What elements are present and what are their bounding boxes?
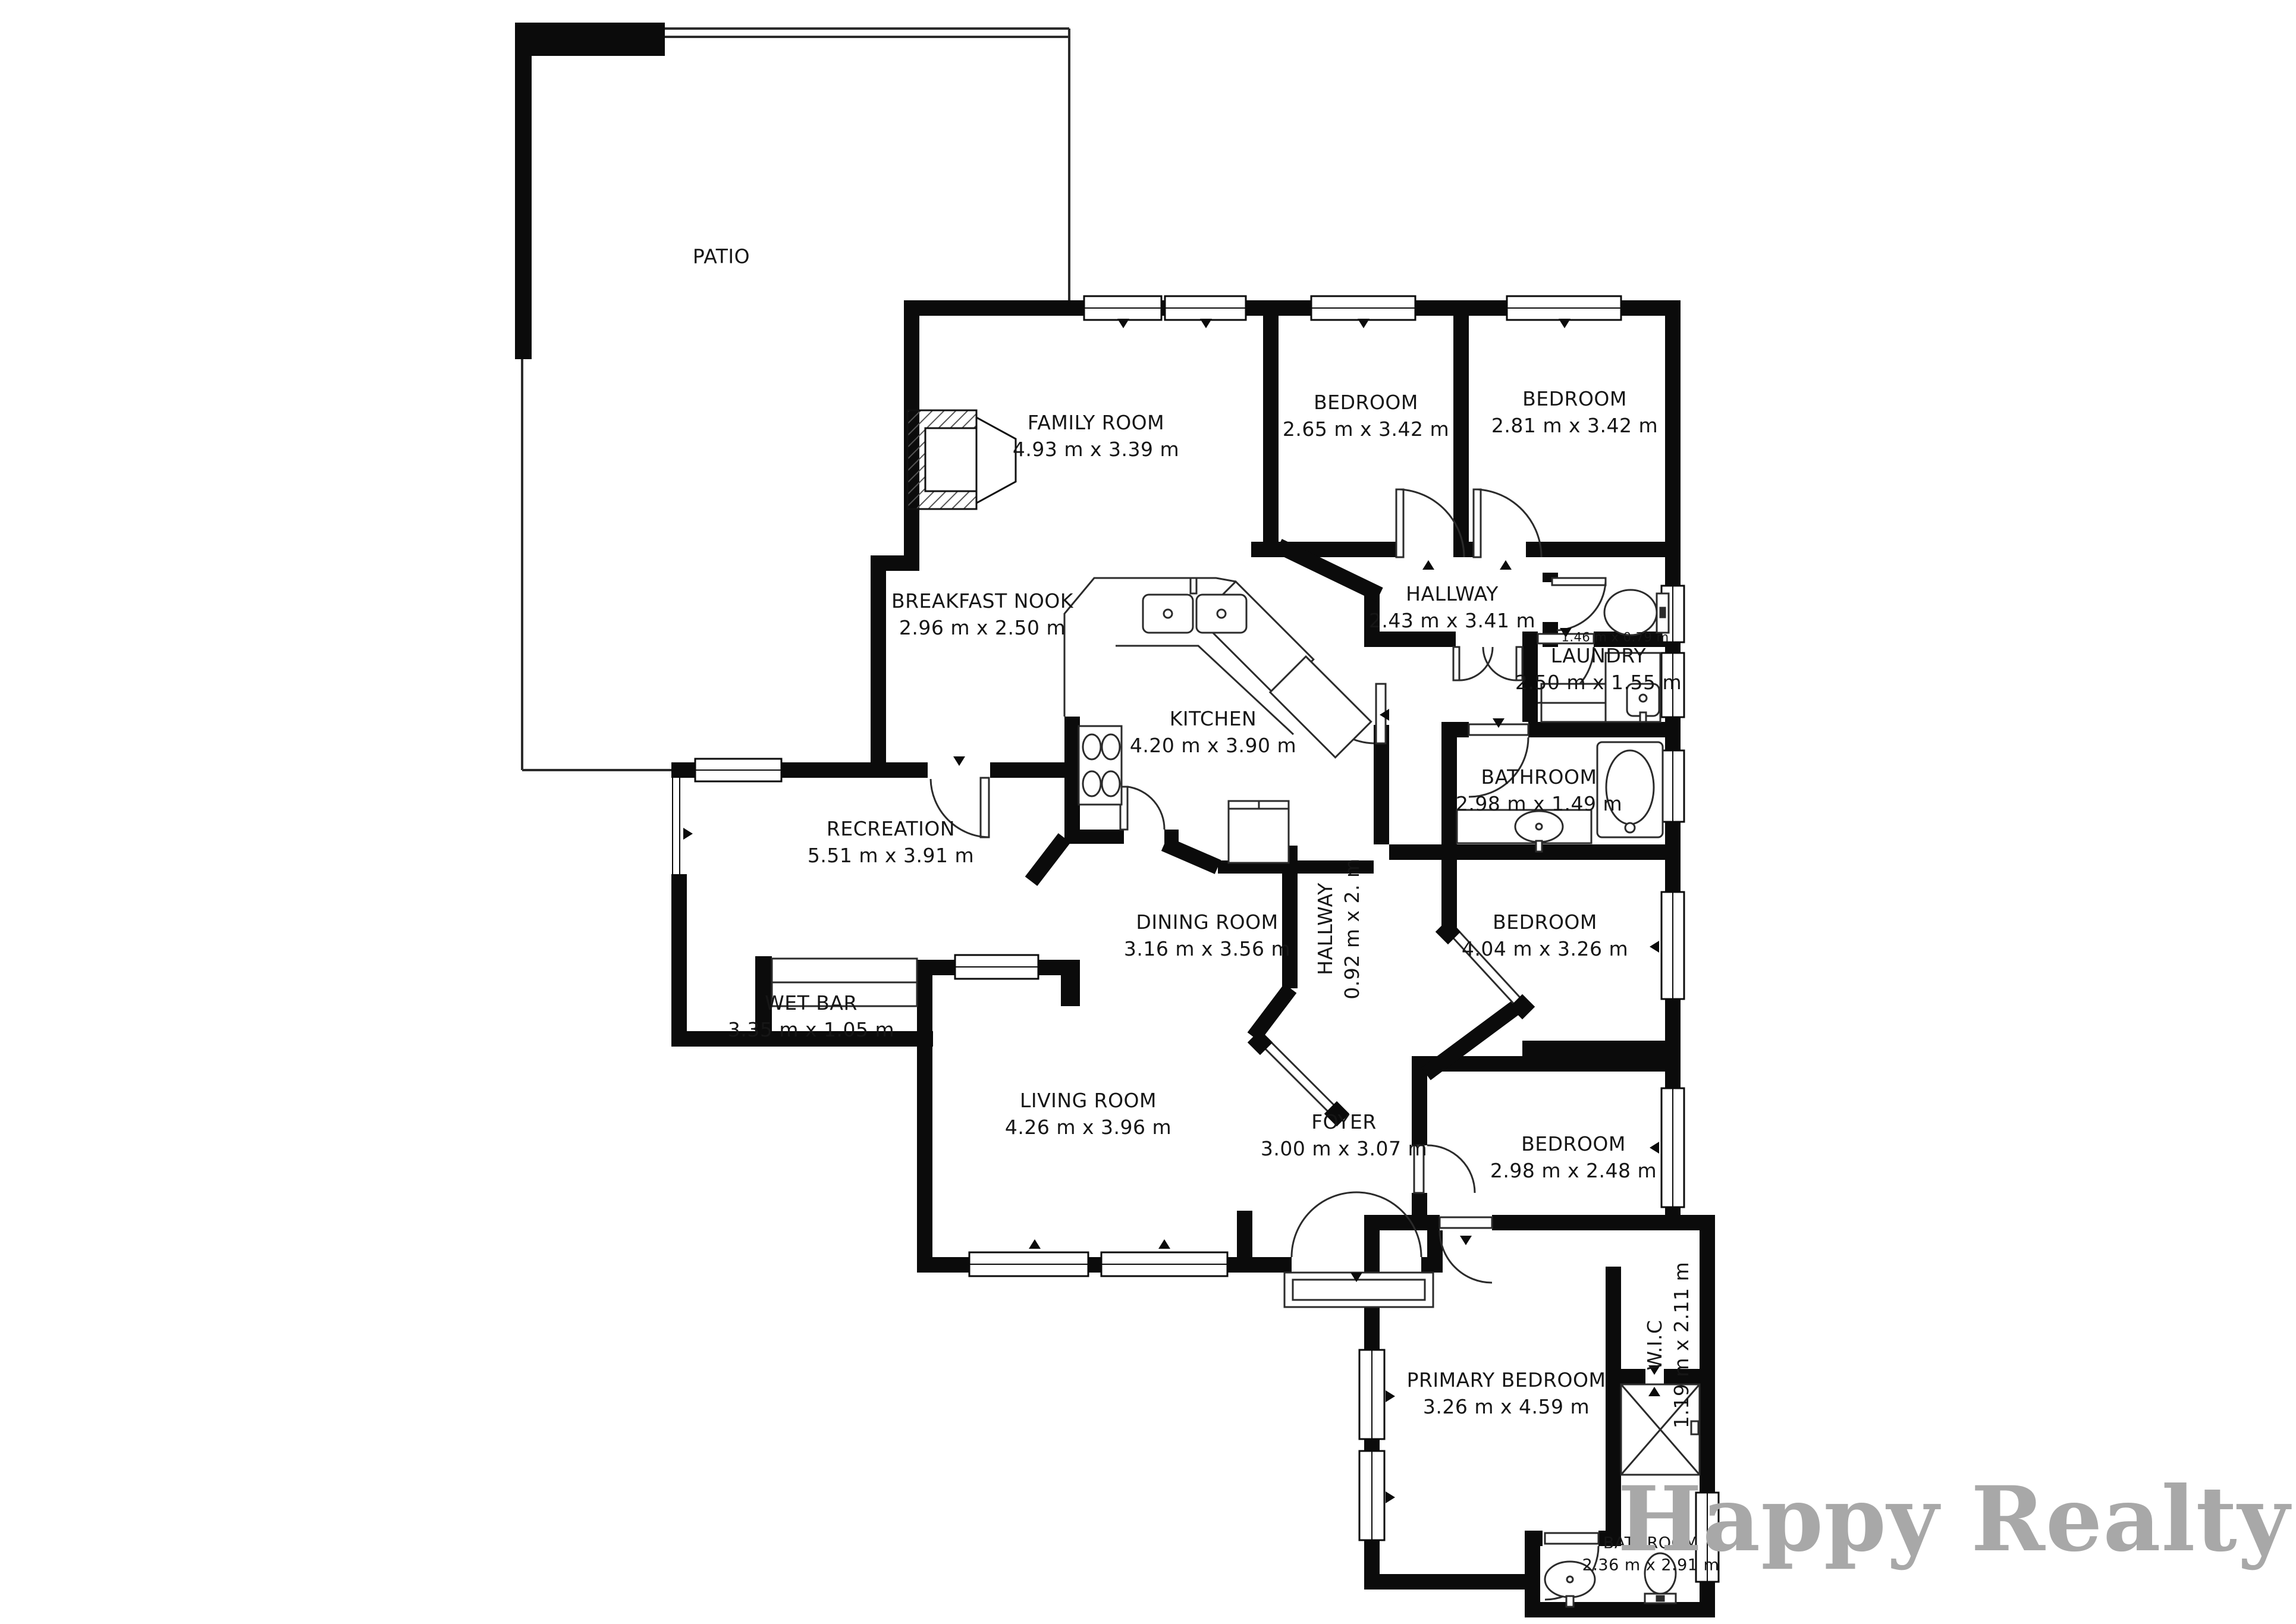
toilet-icon bbox=[1604, 590, 1669, 635]
room-label-recreation: RECREATION5.51 m x 3.91 m bbox=[808, 816, 974, 869]
room-label-kitchen: KITCHEN4.20 m x 3.90 m bbox=[1130, 706, 1296, 759]
room-label-patio: PATIO bbox=[693, 244, 750, 271]
patio-outline bbox=[522, 29, 1069, 770]
room-label-bedroom-2: BEDROOM2.81 m x 3.42 m bbox=[1491, 386, 1658, 439]
floorplan-page: PATIO FAMILY ROOM4.93 m x 3.39 m BEDROOM… bbox=[0, 0, 2296, 1624]
room-label-primary-bedroom: PRIMARY BEDROOM3.26 m x 4.59 m bbox=[1407, 1367, 1606, 1421]
room-label-dining-room: DINING ROOM3.16 m x 3.56 m bbox=[1124, 909, 1290, 963]
room-label-breakfast-nook: BREAKFAST NOOK2.96 m x 2.50 m bbox=[891, 588, 1073, 642]
fridge-icon bbox=[1229, 801, 1289, 863]
room-label-hallway-vertical: HALLWAY0.92 m x 2. m bbox=[1312, 858, 1366, 999]
room-label-wet-bar: WET BAR3.35 m x 1.05 m bbox=[728, 990, 894, 1044]
fireplace-icon bbox=[907, 410, 1016, 509]
stove-icon bbox=[1079, 726, 1122, 805]
room-label-bathroom-mid: BATHROOM2.98 m x 1.49 m bbox=[1456, 764, 1622, 818]
room-label-foyer: FOYER3.00 m x 3.07 m bbox=[1261, 1109, 1427, 1163]
room-label-wic: W.I.C1.19 m x 2.11 m bbox=[1642, 1262, 1695, 1428]
room-label-family-room: FAMILY ROOM4.93 m x 3.39 m bbox=[1013, 410, 1179, 463]
room-label-living-room: LIVING ROOM4.26 m x 3.96 m bbox=[1005, 1088, 1171, 1141]
room-label-hallway: HALLWAY2.43 m x 3.41 m bbox=[1369, 581, 1535, 634]
room-label-bedroom-1: BEDROOM2.65 m x 3.42 m bbox=[1283, 389, 1449, 443]
floorplan-drawing bbox=[0, 0, 2296, 1624]
room-label-bedroom-4: BEDROOM2.98 m x 2.48 m bbox=[1490, 1131, 1657, 1185]
patio-thick-walls bbox=[515, 23, 665, 359]
room-label-bedroom-3: BEDROOM4.04 m x 3.26 m bbox=[1462, 909, 1628, 963]
brand-logo: Happy Realty bbox=[1617, 1475, 2290, 1564]
room-label-laundry: LAUNDRY2.50 m x 1.55 m bbox=[1515, 643, 1682, 696]
